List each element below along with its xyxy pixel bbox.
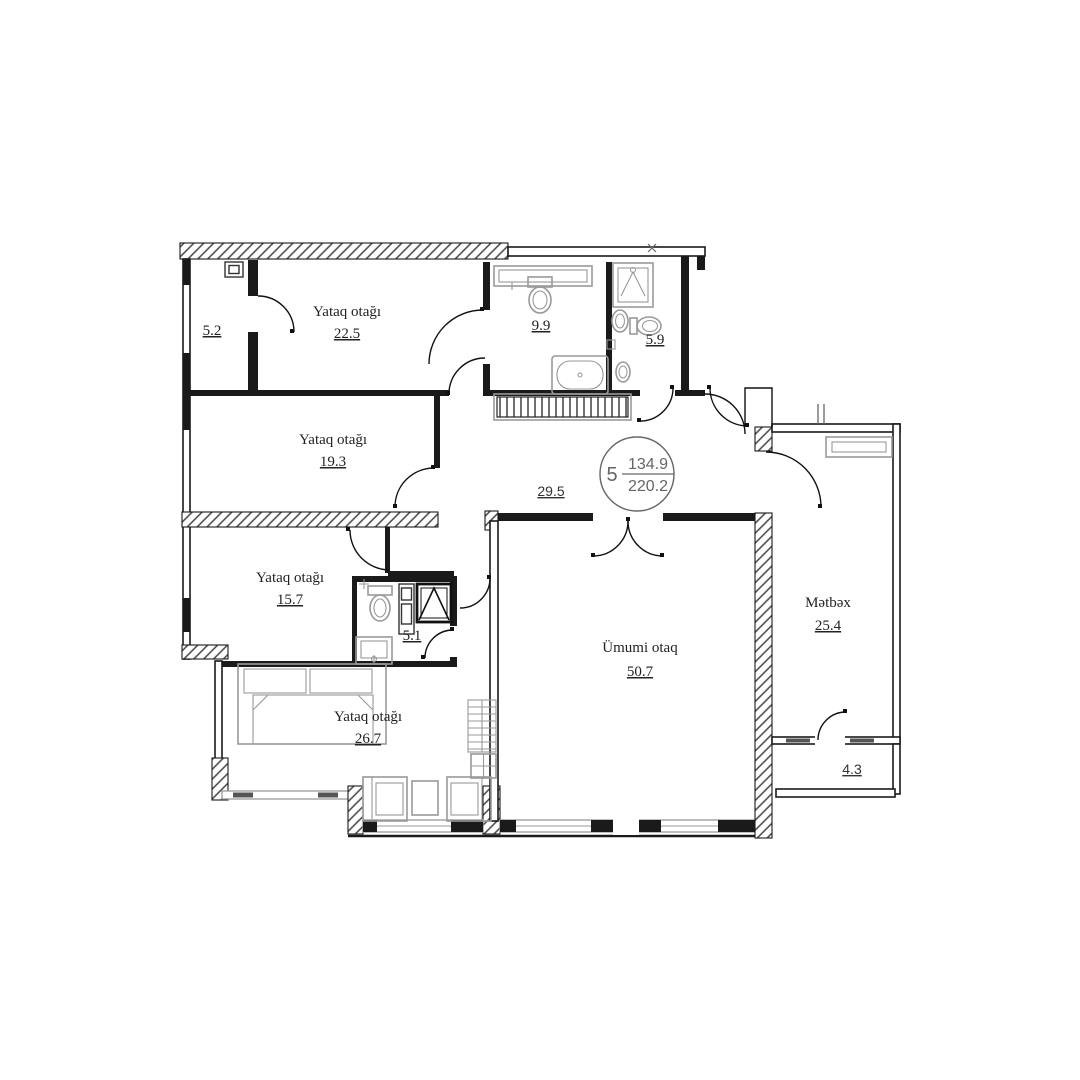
door-arc: [449, 358, 485, 394]
kitchen-window-icon: [826, 437, 892, 457]
unit-lower-area: 220.2: [628, 478, 668, 495]
sink-icon: [612, 310, 628, 332]
room-label-kitchen: Mətbəx: [805, 595, 851, 611]
bathtub-icon: [552, 356, 608, 394]
unit-upper-area: 134.9: [628, 456, 668, 473]
room-area-living: 50.7: [627, 664, 654, 680]
shower-icon: [613, 263, 653, 307]
bathroom-5-1-fixtures: [356, 579, 451, 664]
wall-hatched-band: [182, 645, 228, 659]
faucet-icon: [508, 282, 516, 290]
wc-5-9-fixtures: [607, 263, 661, 382]
wall-hatched-band: [182, 512, 438, 527]
washer-icon: [399, 584, 414, 634]
interior-walls: [183, 256, 772, 821]
wall-hatched-column: [755, 513, 772, 838]
room-area-bath: 9.9: [532, 318, 551, 334]
door-arc: [766, 452, 821, 507]
coffee-table-icon: [412, 781, 438, 815]
sink-icon: [616, 362, 630, 382]
room-area-kitchen: 25.4: [815, 618, 842, 634]
room-area-bedroom-4: 26.7: [355, 731, 382, 747]
vent-shaft-icon: [225, 262, 243, 277]
door-arc: [460, 578, 490, 608]
entrance-niche: [745, 388, 772, 427]
door-arc: [258, 296, 294, 332]
wardrobe-5-2: [225, 262, 243, 277]
room-area-bedroom-3: 15.7: [277, 592, 304, 608]
vanity-counter-icon: [494, 266, 592, 286]
wall-top-hatched: [180, 243, 508, 259]
shower-icon: [417, 584, 451, 622]
door-arc: [429, 310, 483, 364]
door-arc: [395, 468, 434, 507]
door-arc: [640, 388, 673, 421]
double-door-arc: [628, 521, 663, 556]
window-band-bottom: [363, 817, 755, 835]
room-label-bedroom-3: Yataq otağı: [256, 570, 324, 586]
unit-number: 5: [606, 464, 617, 486]
entrance-door-arc: [705, 394, 745, 434]
room-area-balcony: 4.3: [842, 761, 862, 777]
wall-top-thin: [508, 247, 705, 256]
room-label-bedroom-1: Yataq otağı: [313, 304, 381, 320]
room-area-shower-room: 5.1: [403, 628, 422, 644]
room-area-hall: 29.5: [537, 483, 564, 499]
room-area-bedroom-2: 19.3: [320, 454, 346, 470]
room-label-living: Ümumi otaq: [602, 639, 678, 656]
door-arc: [425, 630, 453, 658]
wall-left-window: [215, 661, 222, 760]
wall-hatched-pier: [348, 786, 363, 834]
room-area-bedroom-1: 22.5: [334, 326, 360, 342]
room-area-wc: 5.9: [646, 332, 665, 348]
armchair-icon: [363, 777, 407, 821]
wall-hatched-column: [755, 427, 772, 451]
sink-icon: [356, 637, 392, 664]
room-label-bedroom-2: Yataq otağı: [299, 432, 367, 448]
radiator-icon: [494, 394, 631, 420]
room-label-bedroom-4: Yataq otağı: [334, 709, 402, 725]
room-area-wardrobe: 5.2: [203, 323, 222, 339]
double-door-arc: [593, 521, 628, 556]
toilet-icon: [368, 586, 392, 621]
unit-number-badge: 5 134.9 220.2: [600, 437, 674, 511]
floor-plan: 5 134.9 220.2 5.2 Yataq otağı 22.5 9.9 5…: [0, 0, 1080, 1080]
balcony-rail: [776, 789, 895, 797]
wall-stub: [697, 256, 705, 270]
door-arc: [350, 530, 390, 570]
